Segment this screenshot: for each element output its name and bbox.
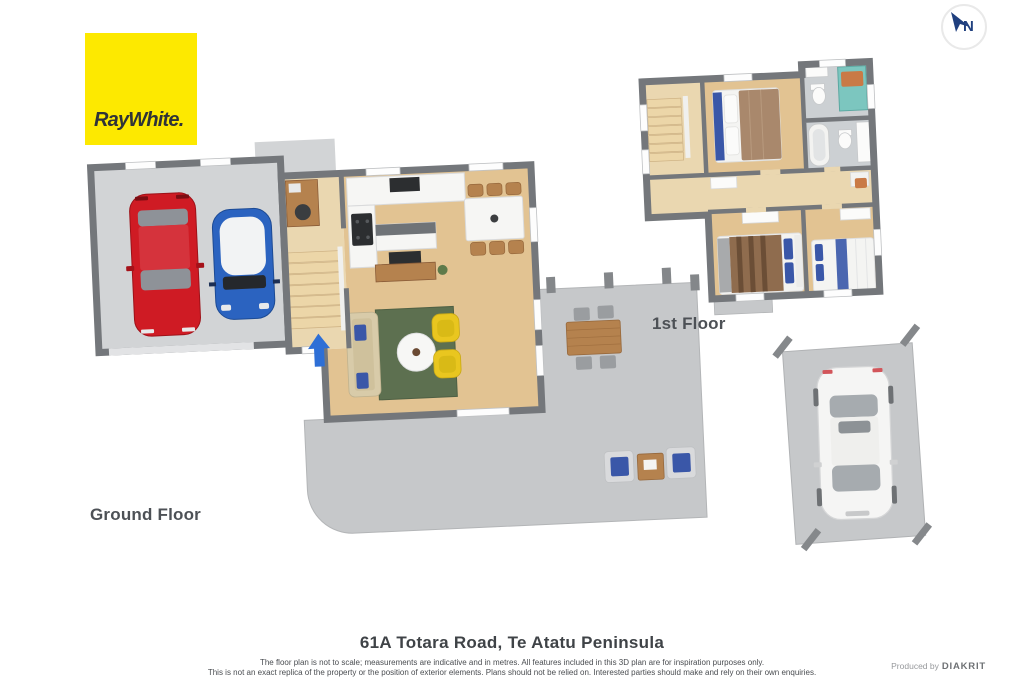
compass-north-label: N	[963, 18, 974, 35]
blue-car	[206, 207, 282, 320]
ground-floor-label: Ground Floor	[90, 505, 201, 525]
window	[724, 73, 752, 81]
produced-by-label: Produced by	[891, 661, 939, 671]
pillow	[724, 95, 738, 124]
door-opening	[822, 203, 842, 209]
window	[366, 167, 400, 176]
master-bed	[713, 88, 782, 163]
disclaimer-line-2: This is not an exact replica of the prop…	[0, 668, 1024, 677]
produced-by: Produced byDIAKRIT	[891, 661, 986, 672]
window	[867, 84, 875, 108]
producer-name: DIAKRIT	[942, 661, 986, 672]
sofa	[345, 312, 381, 397]
dining-set	[464, 182, 525, 256]
desk-chair	[855, 178, 867, 189]
window	[536, 345, 544, 375]
first-floor-label: 1st Floor	[652, 314, 726, 334]
logo-text: RayWhite.	[94, 109, 183, 132]
living-room	[345, 306, 462, 401]
pillow	[784, 262, 794, 283]
window	[125, 161, 155, 169]
cooktop	[351, 213, 373, 246]
window	[819, 59, 845, 67]
tv-cabinet	[375, 262, 436, 282]
wardrobe	[742, 211, 778, 224]
window	[200, 158, 230, 166]
window	[642, 150, 650, 174]
door-opening	[746, 207, 766, 213]
towels	[841, 71, 864, 87]
window	[640, 105, 648, 131]
vanity	[856, 122, 871, 163]
vanity	[806, 66, 828, 77]
laundry-sink	[289, 183, 301, 193]
door-opening	[760, 169, 780, 175]
outdoor-table	[566, 320, 621, 355]
ground-floor-plan	[90, 122, 710, 544]
first-floor-plan	[638, 58, 884, 318]
tv	[389, 251, 422, 264]
window	[874, 229, 882, 255]
disclaimer-line-1: The floor plan is not to scale; measurem…	[0, 658, 1024, 667]
window	[529, 208, 538, 242]
staircase	[287, 246, 346, 332]
window	[824, 289, 852, 297]
wardrobe	[840, 208, 870, 220]
window	[736, 293, 764, 301]
address-title: 61A Totara Road, Te Atatu Peninsula	[0, 633, 1024, 653]
pillow	[816, 264, 825, 281]
compass-icon: N	[941, 4, 987, 50]
pillow	[815, 244, 824, 261]
white-car	[810, 366, 899, 521]
wall-oven	[389, 177, 420, 192]
door-opening	[824, 167, 840, 173]
pillow	[725, 127, 739, 156]
pillow	[783, 238, 793, 259]
ray-white-logo: RayWhite.	[85, 33, 197, 145]
floorplan-page: RayWhite. N Ground Floor 1st Floor 61A T…	[0, 0, 1024, 683]
carport	[771, 323, 935, 554]
toilet	[838, 132, 852, 149]
red-car	[123, 192, 207, 337]
closet	[711, 177, 737, 189]
window	[534, 299, 542, 329]
toilet	[812, 87, 826, 105]
window	[469, 163, 503, 172]
